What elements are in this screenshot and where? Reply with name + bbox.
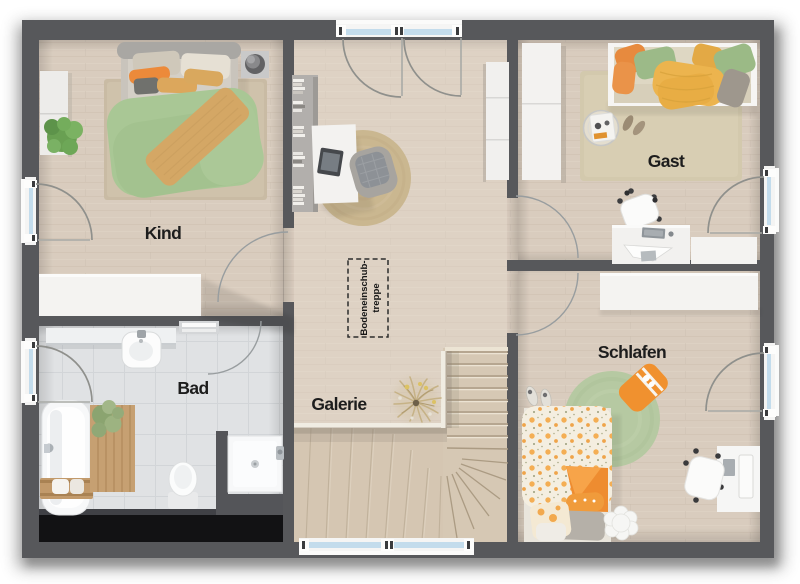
- svg-text:Galerie: Galerie: [311, 394, 367, 414]
- svg-text:treppe: treppe: [371, 283, 382, 312]
- svg-text:Schlafen: Schlafen: [598, 342, 666, 362]
- svg-text:Kind: Kind: [145, 223, 181, 243]
- svg-text:Bodeneinschub-: Bodeneinschub-: [359, 260, 370, 335]
- svg-text:Bad: Bad: [177, 378, 208, 398]
- svg-text:Gast: Gast: [648, 151, 685, 171]
